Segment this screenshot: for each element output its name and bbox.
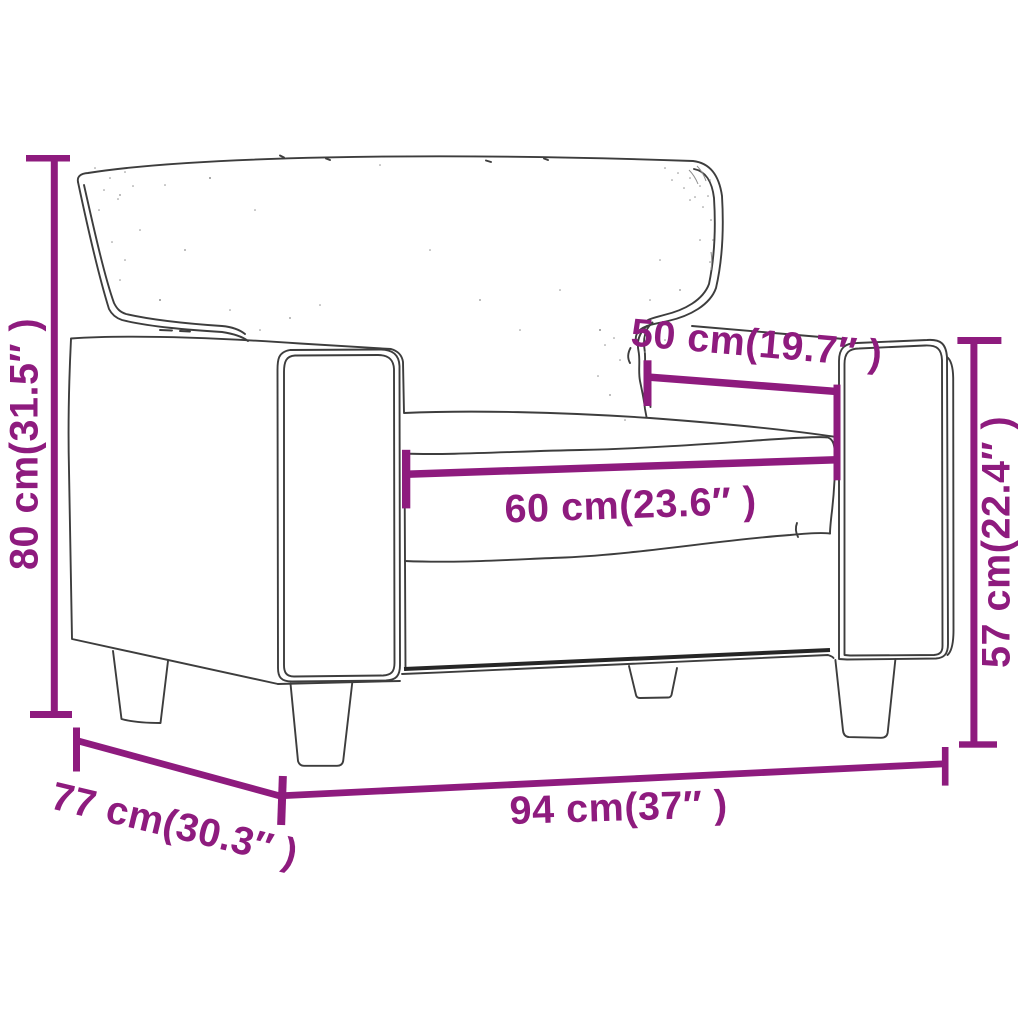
svg-text:94 cm(37″ ): 94 cm(37″ ) bbox=[509, 782, 728, 833]
svg-text:60 cm(23.6″ ): 60 cm(23.6″ ) bbox=[504, 479, 758, 532]
svg-text:57 cm(22.4″ ): 57 cm(22.4″ ) bbox=[974, 416, 1018, 668]
svg-text:80 cm(31.5″ ): 80 cm(31.5″ ) bbox=[3, 318, 47, 570]
